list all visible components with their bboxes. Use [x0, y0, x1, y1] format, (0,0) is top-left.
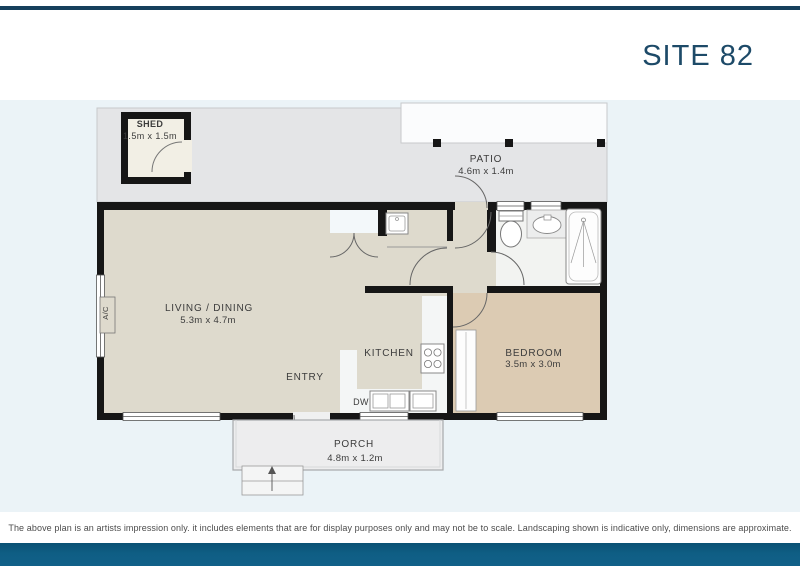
air-conditioner: A/C	[100, 297, 115, 333]
shed-door-gap	[183, 140, 192, 172]
air-conditioner-label: A/C	[101, 306, 110, 320]
room-shed: SHED 1.5m x 1.5m	[121, 112, 192, 184]
dishwasher-label: DW	[353, 397, 369, 407]
room-label-entry: ENTRY	[286, 372, 324, 383]
room-label-shed: SHED	[137, 119, 164, 129]
hall-cupboard-niche	[330, 210, 378, 233]
room-porch: PORCH 4.8m x 1.2m	[233, 420, 443, 470]
floor-plan: SHED 1.5m x 1.5m PATIO 4.6m x 1.4m	[0, 0, 800, 566]
toilet-icon	[499, 211, 523, 247]
bottom-brand-bar	[0, 543, 800, 566]
wardrobe-icon	[456, 330, 476, 411]
shower-icon	[566, 209, 601, 284]
room-dims-living-dining: 5.3m x 4.7m	[180, 315, 236, 326]
dishwasher-icon	[410, 391, 436, 411]
room-dims-patio: 4.6m x 1.4m	[458, 166, 514, 177]
room-label-patio: PATIO	[470, 154, 503, 165]
disclaimer-band: The above plan is an artists impression …	[0, 512, 800, 543]
entry-door-gap	[293, 412, 330, 420]
sink-icon	[370, 391, 409, 411]
patio-door-gap	[455, 202, 488, 210]
room-label-kitchen: KITCHEN	[364, 348, 414, 359]
room-bedroom: BEDROOM 3.5m x 3.0m	[505, 348, 562, 370]
room-dims-shed: 1.5m x 1.5m	[123, 131, 177, 141]
disclaimer-text: The above plan is an artists impression …	[8, 523, 791, 533]
laundry-tub-icon	[386, 213, 408, 234]
room-dims-porch: 4.8m x 1.2m	[327, 453, 383, 464]
deck-area	[401, 103, 607, 143]
stove-icon	[421, 344, 444, 373]
room-dims-bedroom: 3.5m x 3.0m	[505, 359, 561, 370]
room-label-living-dining: LIVING / DINING	[165, 303, 253, 314]
basin-icon	[527, 210, 567, 238]
room-label-porch: PORCH	[334, 439, 374, 450]
room-label-bedroom: BEDROOM	[505, 348, 562, 359]
stairs-up-icon	[242, 466, 303, 495]
